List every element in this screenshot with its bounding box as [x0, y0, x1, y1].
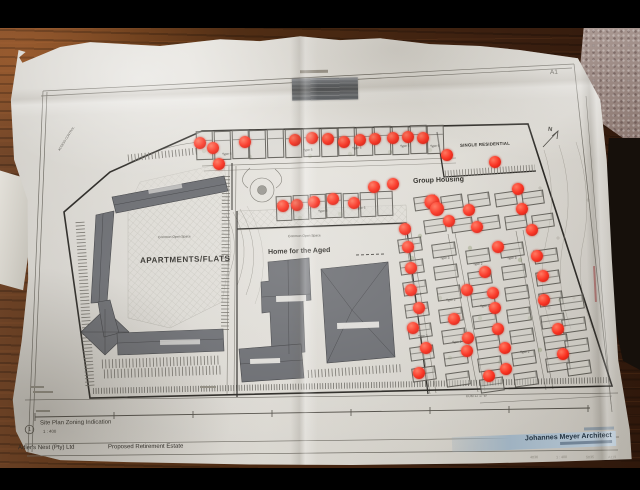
access-control-label: ACCESS CONTROL — [58, 126, 75, 151]
client-name: Adler's Nest (Pty) Ltd — [18, 445, 75, 452]
architect-subtext-illegible — [560, 440, 612, 444]
open-space-label-mid: Common Open Space — [288, 234, 321, 238]
open-space-label-left: Common Open Space — [158, 235, 191, 239]
photo-letterbox-bottom — [0, 468, 640, 490]
approval-stamp — [292, 77, 358, 100]
ref-number: 4036 — [530, 456, 538, 460]
photo-letterbox-top — [0, 0, 640, 28]
boundary-bearing-label: KOM 12 17 W — [466, 394, 487, 398]
north-label: N — [548, 127, 553, 133]
revision-text-vertical — [593, 266, 597, 302]
sheet-size-label: A1 — [550, 69, 558, 76]
label-leader-line — [356, 254, 384, 256]
ref-scale: 1 : 400 — [556, 456, 567, 460]
architect-title-band: Johannes Meyer Architect — [452, 431, 616, 452]
drawing-number-bubble: 1 — [25, 425, 34, 434]
drawing-scale: 1 : 400 — [43, 430, 56, 435]
stamp-caption-illegible — [300, 70, 328, 73]
illegible-text — [33, 391, 53, 393]
illegible-text — [584, 426, 614, 430]
group-housing-label: Group Housing — [413, 176, 464, 185]
photo-of-site-plan: Type 6Type 5Type 5Type 5Type 6Type 6Type… — [0, 0, 640, 490]
project-name: Proposed Retirement Estate — [108, 444, 183, 451]
apartments-flats-label: APARTMENTS/FLATS — [140, 254, 231, 265]
drawing-title: Site Plan Zoning Indication — [40, 420, 111, 427]
illegible-text — [200, 386, 216, 388]
ref-sheet-number: A119 — [608, 456, 616, 460]
single-residential-label: SINGLE RESIDENTIAL — [460, 142, 510, 148]
ref-number: 5035 — [586, 456, 594, 460]
plan-labels-layer: APARTMENTS/FLATS Home for the Aged Group… — [0, 0, 640, 490]
home-for-the-aged-label: Home for the Aged — [268, 247, 331, 256]
illegible-text — [30, 386, 44, 388]
illegible-text — [36, 410, 50, 412]
